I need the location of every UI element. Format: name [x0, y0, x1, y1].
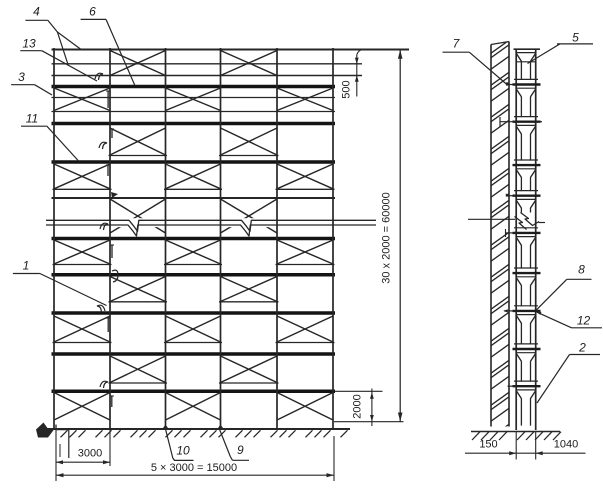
- svg-text:3000: 3000: [78, 448, 102, 460]
- svg-text:4: 4: [33, 5, 40, 19]
- svg-text:10: 10: [176, 444, 190, 458]
- svg-text:7: 7: [453, 37, 461, 51]
- svg-text:5: 5: [572, 31, 579, 45]
- svg-text:12: 12: [577, 314, 591, 328]
- svg-text:9: 9: [237, 443, 244, 457]
- svg-text:11: 11: [26, 112, 38, 126]
- svg-text:500: 500: [341, 80, 353, 98]
- svg-text:30 x 2000 = 60000: 30 x 2000 = 60000: [381, 192, 393, 283]
- svg-text:13: 13: [22, 37, 36, 51]
- svg-text:8: 8: [578, 263, 585, 277]
- svg-text:2000: 2000: [352, 394, 364, 418]
- svg-text:2: 2: [578, 341, 586, 355]
- svg-text:1: 1: [23, 259, 30, 273]
- svg-text:1040: 1040: [554, 439, 578, 451]
- svg-text:5 × 3000 = 15000: 5 × 3000 = 15000: [151, 462, 237, 474]
- svg-text:6: 6: [89, 5, 96, 19]
- svg-text:150: 150: [479, 439, 497, 451]
- svg-text:3: 3: [18, 70, 25, 84]
